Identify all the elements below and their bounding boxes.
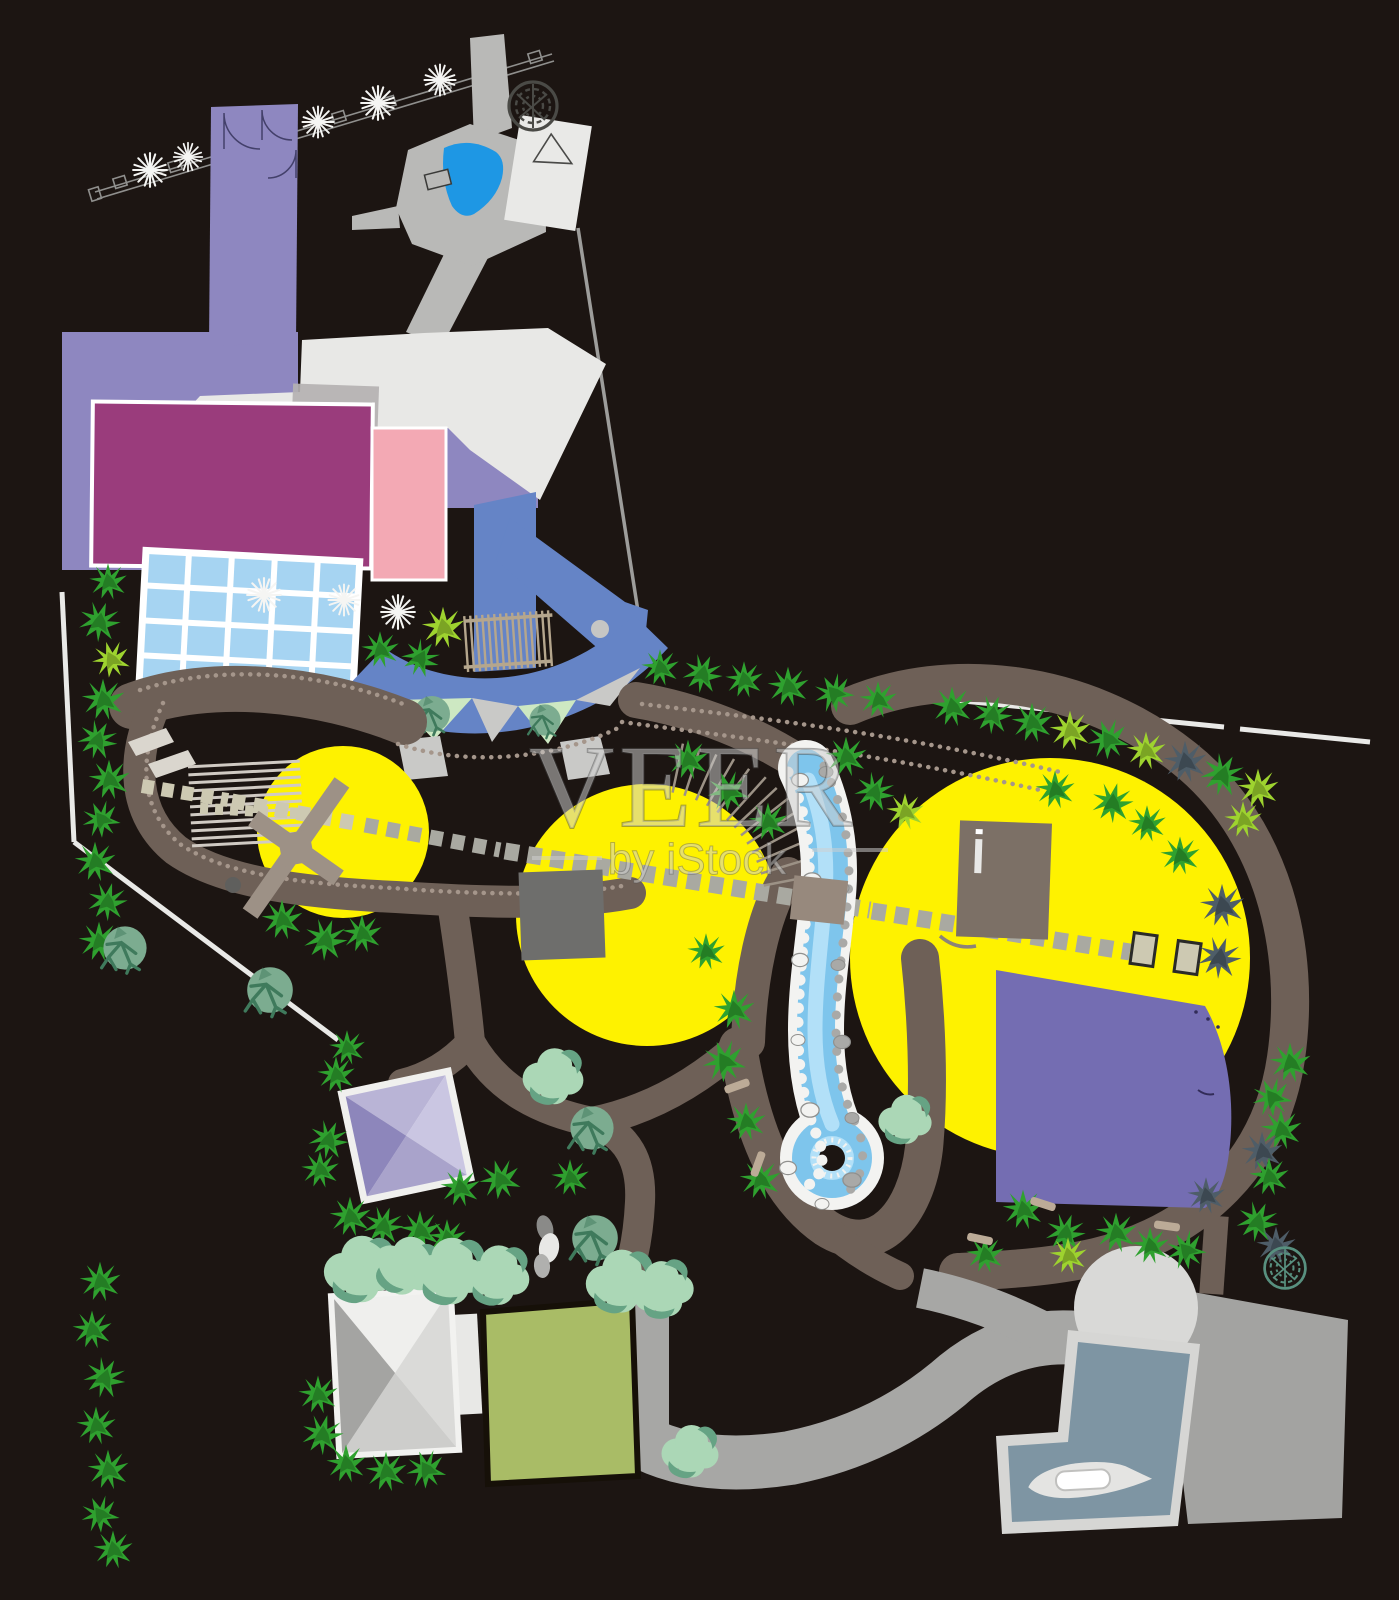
stone-terminus-2 [1174, 941, 1201, 975]
lavender-tower-north [209, 104, 298, 346]
watermark-subtitle: by iStock [608, 835, 788, 884]
stone-terminus-1 [1130, 933, 1157, 967]
pink-hall [372, 428, 446, 580]
site-plan-svg: VEER by iStock [0, 0, 1399, 1600]
watermark-title: VEER [529, 721, 857, 852]
starburst-tree-icon [302, 106, 333, 137]
east-pavilion [956, 820, 1052, 939]
starburst-tree-icon [361, 86, 395, 120]
starburst-tree-icon [174, 143, 203, 172]
river-bridge [790, 875, 848, 924]
purple-court [996, 970, 1231, 1208]
starburst-tree-icon [328, 584, 359, 615]
starburst-tree-icon [247, 578, 281, 612]
plaza-dot [591, 620, 609, 638]
center-pavilion [518, 870, 605, 961]
pavilion-detail [974, 839, 982, 873]
connector-path-1 [452, 903, 470, 1042]
event-lawn [483, 1300, 638, 1484]
yacht-cabin [1056, 1469, 1111, 1491]
starburst-tree-icon [424, 64, 455, 95]
plaza-dot-small [225, 877, 241, 893]
starburst-tree-icon [381, 595, 415, 629]
site-plan-canvas: VEER by iStock [0, 0, 1399, 1600]
starburst-tree-icon [133, 153, 167, 187]
magenta-hall [91, 402, 373, 569]
